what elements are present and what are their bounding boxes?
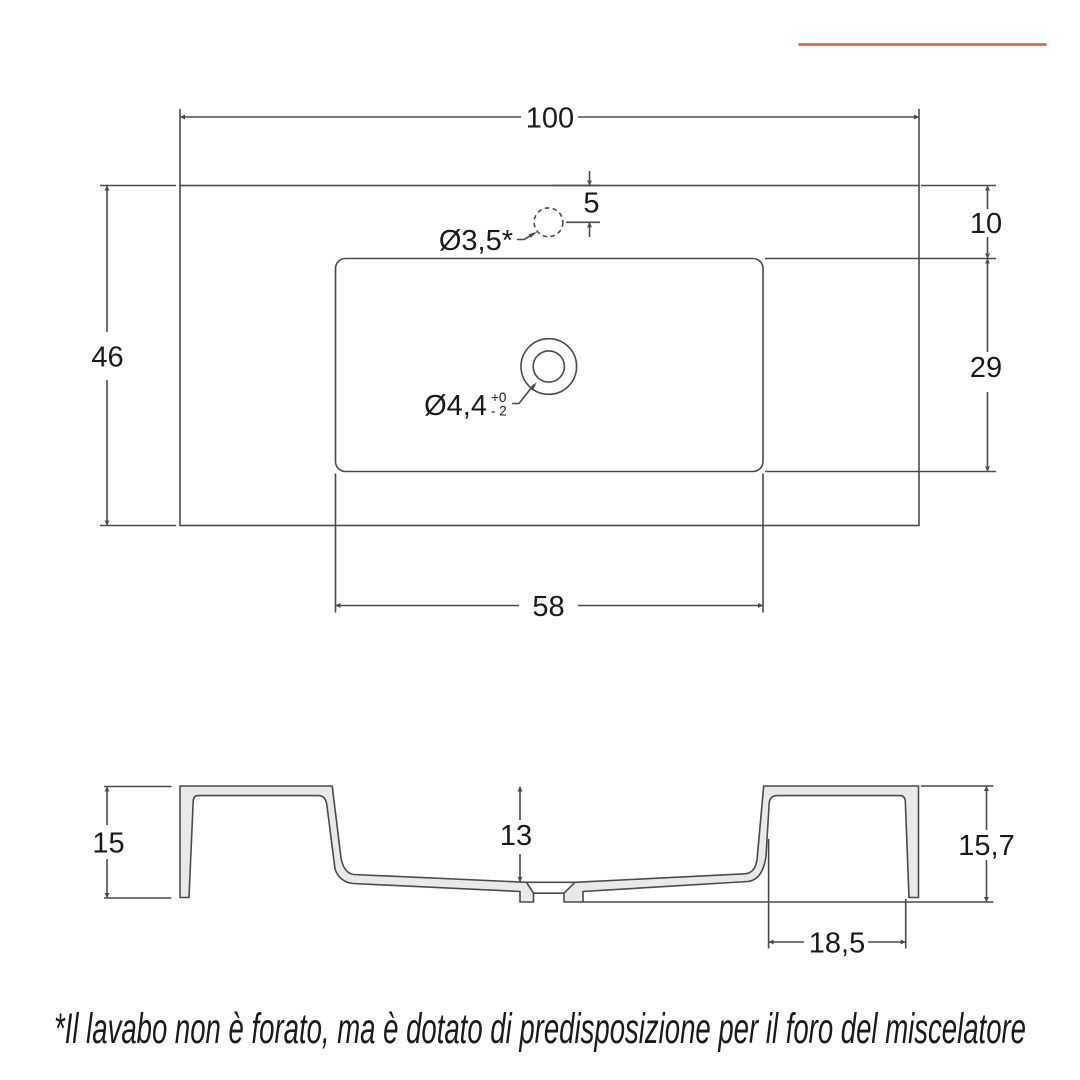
svg-text:- 2: - 2 (491, 404, 507, 419)
svg-text:46: 46 (91, 342, 123, 374)
svg-text:29: 29 (970, 352, 1002, 384)
svg-text:100: 100 (526, 103, 574, 135)
svg-text:18,5: 18,5 (809, 928, 865, 960)
svg-text:58: 58 (532, 591, 564, 623)
svg-text:5: 5 (583, 188, 599, 220)
svg-text:*Il lavabo non è forato, ma è: *Il lavabo non è forato, ma è dotato di … (54, 1005, 1026, 1053)
svg-text:15,7: 15,7 (958, 830, 1014, 862)
svg-text:Ø4,4: Ø4,4 (424, 390, 487, 422)
svg-text:Ø3,5*: Ø3,5* (439, 225, 513, 257)
svg-text:10: 10 (970, 208, 1002, 240)
svg-text:13: 13 (500, 820, 532, 852)
svg-text:15: 15 (92, 828, 124, 860)
